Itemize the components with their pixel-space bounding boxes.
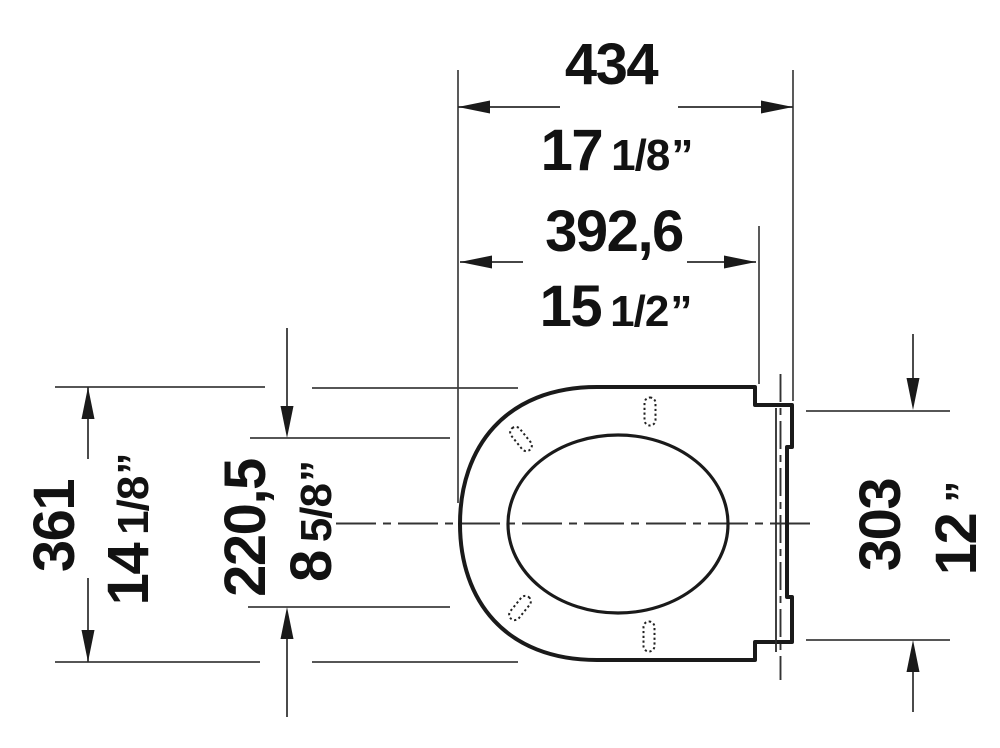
dim-left-inner-metric-value: 220,5 bbox=[213, 459, 278, 597]
arrow-361-up bbox=[82, 387, 95, 419]
arrow-303-up bbox=[907, 640, 920, 672]
dim-right-metric-label: 303 bbox=[852, 479, 910, 571]
dim-top-inner-metric-label: 392,6 bbox=[545, 203, 683, 261]
arrow-220-up bbox=[281, 607, 294, 639]
dim-left-outer-metric-label: 361 bbox=[26, 480, 84, 572]
arrow-392-right bbox=[724, 256, 756, 269]
arrow-303-down bbox=[907, 378, 920, 410]
dim-top-inner-imperial-label: 151/2” bbox=[540, 278, 693, 336]
dim-top-outer-metric-label: 434 bbox=[565, 36, 657, 94]
dim-left-inner-unit-mark: ” bbox=[292, 460, 341, 482]
dim-left-outer-imperial-label: 141/8” bbox=[100, 453, 158, 606]
bumper-slot-top-left bbox=[508, 425, 534, 454]
arrow-220-down bbox=[281, 406, 294, 438]
dim-left-outer-metric-value: 361 bbox=[22, 480, 87, 572]
dim-top-outer-imperial-label: 171/8” bbox=[541, 122, 694, 180]
dim-right-unit-mark: ” bbox=[937, 481, 986, 503]
dim-top-inner-metric-value: 392,6 bbox=[545, 199, 683, 264]
dim-top-inner-imperial-frac: 1/2 bbox=[610, 287, 668, 336]
dim-top-inner-imperial-whole: 15 bbox=[540, 274, 602, 339]
dim-left-inner-imperial-whole: 8 bbox=[279, 551, 344, 582]
centerlines bbox=[336, 374, 816, 680]
arrow-392-left bbox=[460, 256, 492, 269]
dim-left-outer-unit-mark: ” bbox=[109, 453, 158, 475]
dim-top-outer-imperial-whole: 17 bbox=[541, 118, 603, 183]
dim-left-inner-metric-label: 220,5 bbox=[217, 459, 275, 597]
drawing-canvas: 434 171/8” 392,6 151/2” 361 141/8” 220,5… bbox=[0, 0, 1000, 748]
arrow-434-left bbox=[458, 101, 490, 114]
arrow-361-down bbox=[82, 630, 95, 662]
dim-top-outer-imperial-frac: 1/8 bbox=[611, 131, 669, 180]
line-art bbox=[0, 0, 1000, 748]
dim-top-inner-unit-mark: ” bbox=[670, 287, 692, 336]
dim-right-imperial-label: 12” bbox=[928, 481, 986, 576]
dim-left-outer-imperial-whole: 14 bbox=[96, 544, 161, 606]
extension-lines bbox=[55, 70, 950, 662]
dim-right-imperial-whole: 12 bbox=[924, 514, 989, 576]
dim-left-inner-imperial-label: 85/8” bbox=[283, 460, 341, 582]
dim-left-inner-imperial-frac: 5/8 bbox=[292, 484, 341, 542]
dim-top-outer-unit-mark: ” bbox=[671, 131, 693, 180]
bumper-slot-bottom-left bbox=[507, 594, 533, 623]
dim-top-outer-metric-value: 434 bbox=[565, 32, 657, 97]
arrow-434-right bbox=[761, 101, 793, 114]
bumper-slot-bottom-center bbox=[644, 622, 655, 652]
dim-left-outer-imperial-frac: 1/8 bbox=[109, 477, 158, 535]
bumper-slot-top-center bbox=[645, 398, 656, 426]
dim-right-metric-value: 303 bbox=[848, 479, 913, 571]
